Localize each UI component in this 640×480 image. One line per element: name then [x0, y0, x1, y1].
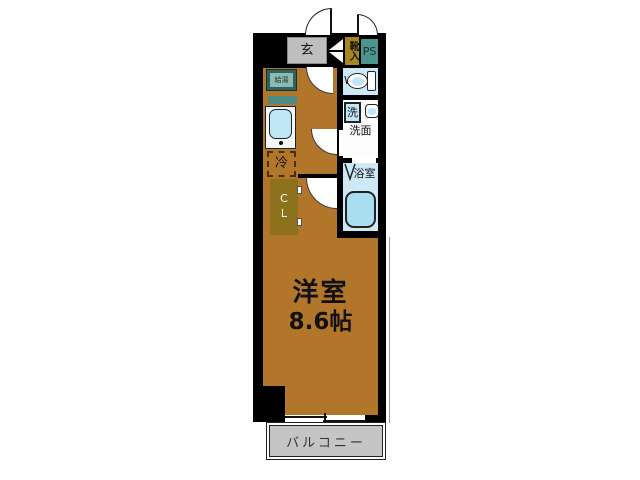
- balcony: バルコニー: [266, 422, 386, 460]
- room-label: 洋室: [263, 280, 378, 307]
- kitchen-faucet-dot-icon: [279, 141, 283, 145]
- bathtub-icon: [345, 191, 376, 228]
- right-wall: [378, 33, 386, 423]
- closet-door-jamb-bottom: [297, 218, 302, 226]
- window-sash-left-icon: [285, 416, 327, 418]
- toilet-bowl-inner-icon: [352, 77, 364, 86]
- shoe-cabinet: 靴入: [345, 37, 359, 65]
- room-size-label: 8.6帖: [263, 310, 378, 334]
- closet-label: CL: [278, 192, 291, 222]
- neighbor-boundary-line: [389, 237, 390, 423]
- washing-machine-label: 洗: [347, 107, 358, 119]
- bathroom-bottom-wall: [337, 231, 386, 238]
- floor-plan: 玄 靴入 PS 給湯 冷 CL WC 洗: [0, 0, 640, 480]
- entrance-label: 玄: [300, 44, 313, 58]
- balcony-inner: バルコニー: [269, 425, 383, 457]
- bottom-left-wall-block: [253, 386, 285, 422]
- left-wall: [253, 33, 263, 422]
- wc-room: WC: [343, 68, 378, 95]
- toilet-tank-icon: [367, 71, 376, 91]
- closet: CL: [270, 179, 298, 235]
- closet-door-jamb-top: [297, 186, 302, 194]
- entrance-door-swing-icon: [305, 8, 332, 35]
- washroom: 洗 洗面: [343, 100, 378, 158]
- kitchen-counter: [268, 96, 297, 104]
- washroom-label: 洗面: [343, 125, 378, 137]
- pipe-space-label: PS: [363, 46, 377, 58]
- mini-kitchen: [265, 106, 296, 149]
- shoe-cabinet-label: 靴入: [347, 41, 358, 61]
- pipe-space: PS: [361, 39, 378, 64]
- bathroom-label: 浴室: [351, 168, 378, 180]
- washbasin-bowl-icon: [368, 108, 376, 115]
- balcony-label: バルコニー: [286, 432, 366, 451]
- washbasin-icon: [365, 104, 379, 118]
- washing-machine: 洗: [344, 102, 361, 123]
- water-heater-panel: 給湯: [270, 73, 293, 87]
- refrigerator-space: 冷: [267, 151, 296, 177]
- water-heater: 給湯: [266, 69, 297, 91]
- water-heater-label: 給湯: [275, 75, 289, 85]
- entrance-genkan: 玄: [287, 37, 327, 64]
- kitchen-sink-icon: [269, 109, 292, 139]
- bathroom: 浴室: [343, 163, 378, 231]
- refrigerator-label: 冷: [275, 157, 288, 171]
- pipe-space-door-swing-icon: [357, 14, 378, 35]
